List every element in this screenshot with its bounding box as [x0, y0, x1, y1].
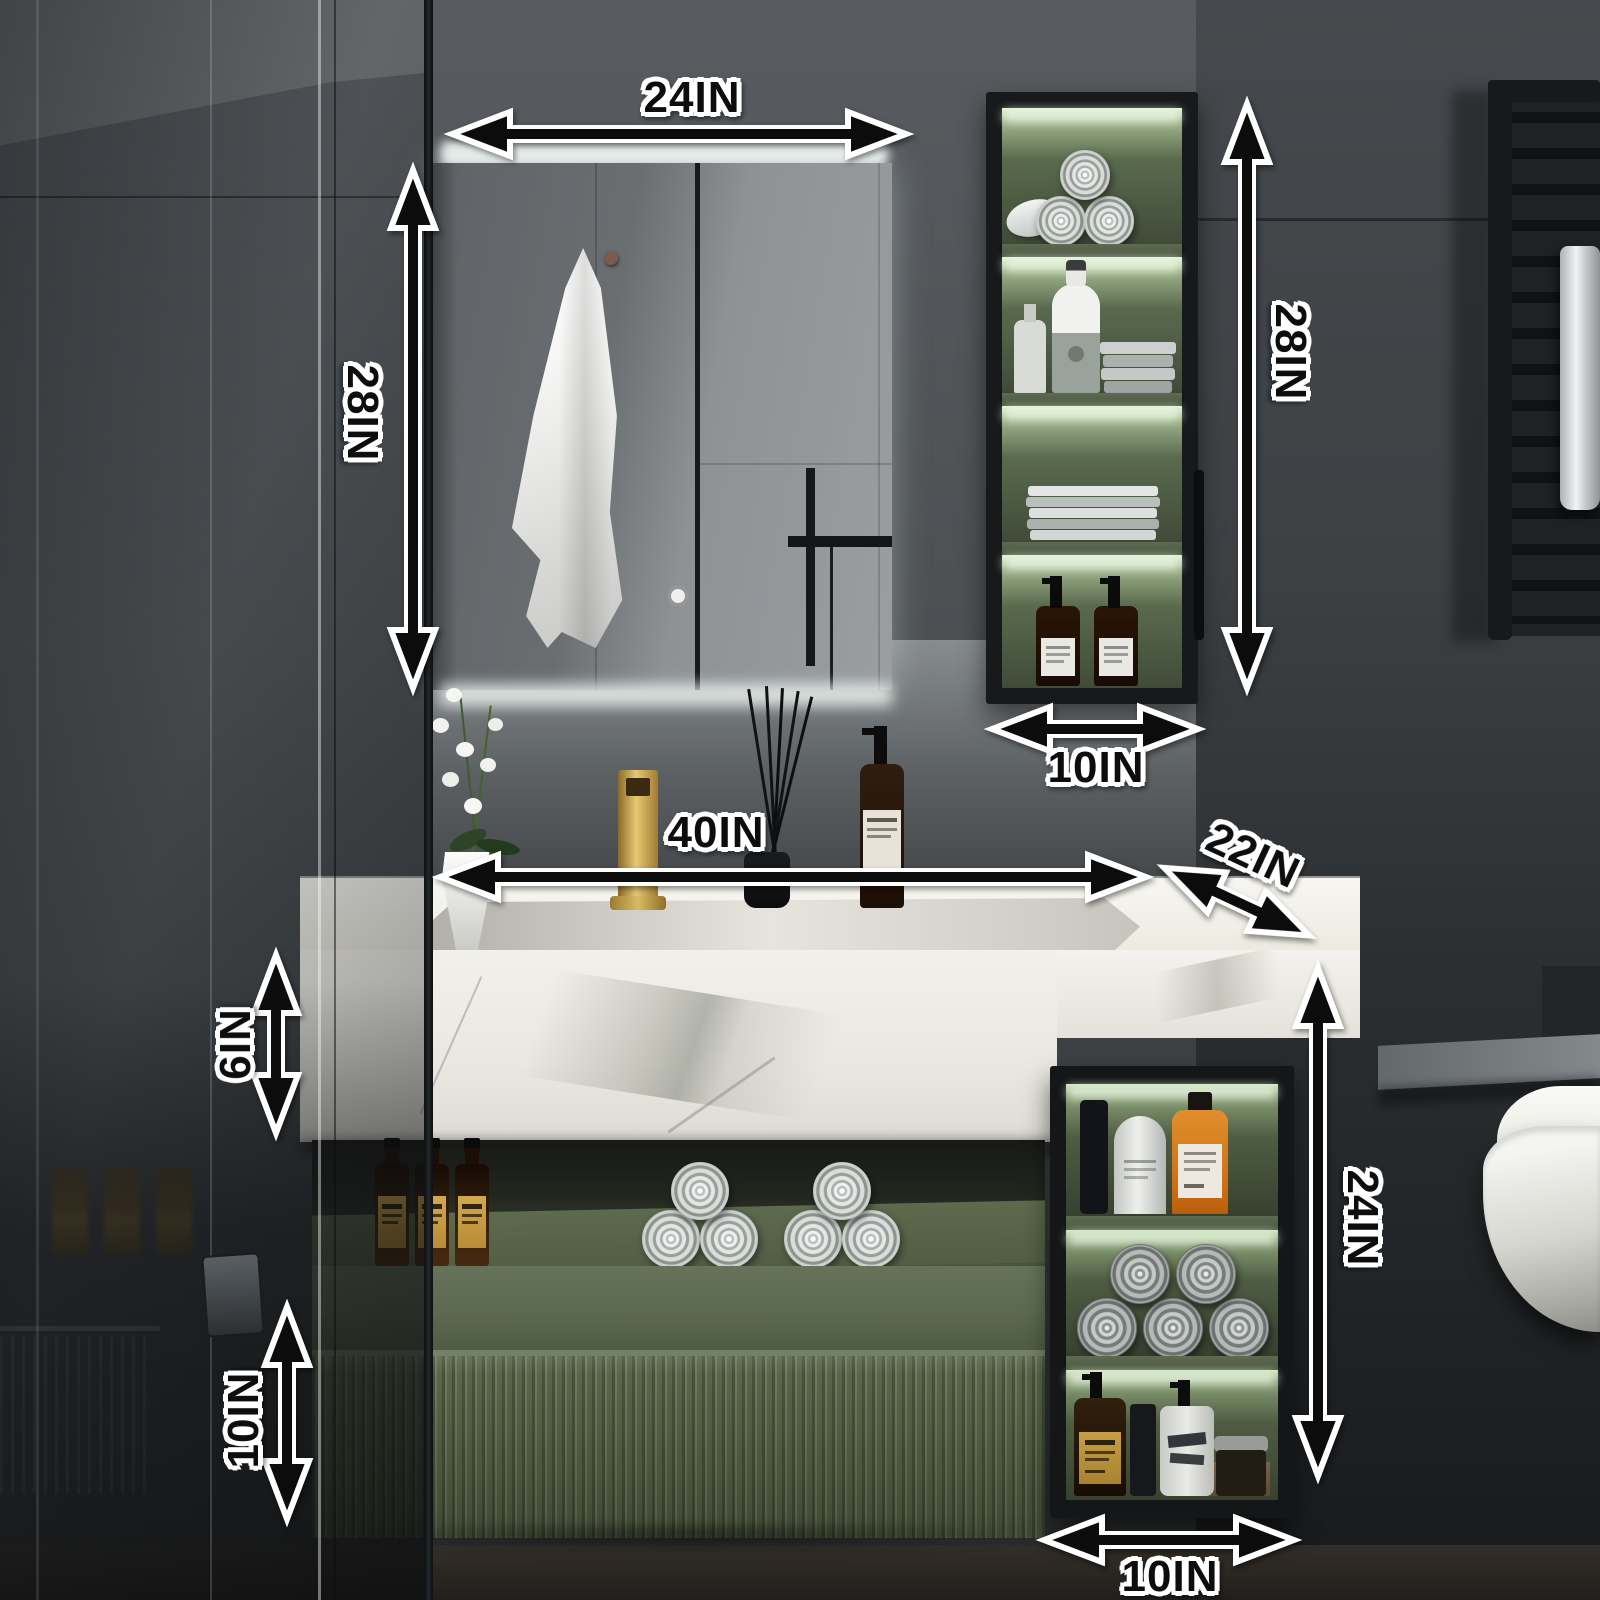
towel-radiator-rail [1488, 80, 1512, 640]
mirror-logo-dot [668, 586, 688, 606]
mirror-seam [695, 163, 700, 690]
rolled-towel [1143, 1298, 1203, 1358]
folded-towel-stack [1026, 486, 1160, 542]
led-glow-strip [1004, 557, 1180, 569]
shower-mixer-hose [830, 547, 833, 690]
folded-towel-layer [1028, 486, 1158, 496]
dim-label-vanity-width: 40IN [668, 808, 765, 858]
folded-towel-layer [1030, 530, 1156, 540]
rolled-towel [1060, 150, 1110, 200]
folded-towel-layer [1101, 368, 1175, 380]
label-text-line [1046, 646, 1070, 649]
label-text-line [462, 1221, 478, 1224]
led-glow-strip [1004, 408, 1180, 420]
shelf-amber-bottle [455, 1138, 489, 1268]
amber-pump-bottle-nub [1082, 1374, 1096, 1380]
label-text-line [1184, 1168, 1210, 1171]
label-text-line [1046, 653, 1070, 656]
orchid-flower [464, 798, 482, 814]
label-text-line [1085, 1440, 1115, 1445]
orchid-flower [456, 742, 474, 757]
glass-edge-line [210, 0, 212, 1600]
led-mirror [432, 163, 892, 690]
glass-edge-line [36, 0, 39, 1600]
cabinet-compartment-1 [1002, 108, 1182, 244]
cabinet-compartment-2 [1002, 257, 1182, 393]
label-text-line [1085, 1458, 1109, 1461]
folded-towel-layer [1026, 497, 1160, 507]
folded-towel-layer [1029, 508, 1157, 518]
rolled-towel [1176, 1244, 1236, 1304]
label-text-line [1184, 1152, 1216, 1155]
orchid [420, 660, 550, 960]
label-text-line [1085, 1470, 1105, 1473]
orange-bottle-cap [1188, 1092, 1212, 1112]
dim-label-mirror-height: 28IN [337, 365, 387, 462]
label-text-line [1104, 660, 1122, 663]
rolled-towel [1036, 196, 1086, 246]
amber-pump-bottle-nub [1042, 578, 1054, 584]
dim-label-wall-cabinet-height: 28IN [1265, 304, 1315, 401]
dim-label-drawer-height: 10IN [219, 1372, 269, 1469]
ceramic-bottle-cap [1066, 260, 1086, 286]
faucet-spout-slot [626, 778, 650, 796]
cabinet-compartment-3 [1002, 406, 1182, 542]
dim-label-side-cabinet-width: 10IN [1122, 1552, 1219, 1600]
pump-bottle-small-pump [1024, 304, 1036, 322]
label-text-line [867, 818, 897, 822]
pump-bottle-small [1014, 320, 1046, 393]
label-text-line [462, 1214, 482, 1217]
orchid-flower [488, 718, 503, 731]
cistern-box [1542, 966, 1600, 1042]
dim-arrow-vanity-width [436, 849, 1150, 905]
dim-label-mirror-width: 24IN [644, 73, 741, 123]
ceramic-bottle [1052, 284, 1100, 393]
cabinet-handle [1194, 470, 1204, 640]
led-glow-strip [1004, 259, 1180, 271]
side-compartment-3 [1066, 1370, 1278, 1500]
led-glow-strip [1068, 1232, 1276, 1244]
orange-bottle-label [1178, 1144, 1222, 1198]
label-text-line [1104, 653, 1128, 656]
rolled-towel [700, 1210, 758, 1268]
dark-bottle [1080, 1100, 1108, 1214]
soap-pump-nozzle [862, 728, 878, 735]
glass-edge-highlight [318, 0, 321, 1600]
mirror-grout-line-h [700, 463, 892, 465]
dim-label-side-cabinet-height: 24IN [1337, 1170, 1387, 1267]
side-compartment-1 [1066, 1084, 1278, 1216]
rolled-towel [1110, 1244, 1170, 1304]
rolled-towel [842, 1210, 900, 1268]
led-glow-strip [1068, 1086, 1276, 1098]
towel-hook-knob [604, 251, 618, 265]
side-unit-interior [1066, 1084, 1278, 1500]
radiator-towel [1560, 246, 1600, 510]
amber-pump-bottle [1074, 1398, 1126, 1496]
rolled-towel [813, 1162, 871, 1220]
mirror-grout-line-v2 [878, 163, 880, 690]
marble-vein [355, 950, 1004, 1142]
label-text-line [1170, 1453, 1205, 1465]
label-text-line [462, 1204, 482, 1209]
rolled-towel [1084, 196, 1134, 246]
dim-label-countertop-height: 6IN [211, 1008, 261, 1079]
cosmetic-jar-body [1216, 1450, 1266, 1496]
cabinet-shelf [1002, 244, 1182, 257]
cabinet-shelf [1002, 393, 1182, 406]
glass-shower-panel [0, 0, 433, 1600]
amber-pump-bottle-nub [1100, 578, 1112, 584]
cabinet-compartment-4 [1002, 555, 1182, 688]
label-text-line [1184, 1160, 1216, 1163]
orange-bottle [1172, 1110, 1228, 1214]
dim-label-wall-cabinet-width: 10IN [1048, 743, 1145, 793]
orchid-flower [442, 772, 459, 787]
white-cylinder-bottle [1114, 1116, 1166, 1214]
wall-cabinet-interior [1002, 108, 1182, 688]
glass-edge-dark [334, 0, 336, 1600]
apple-motif [1068, 346, 1084, 362]
orchid-flower [432, 718, 449, 733]
white-pump-bottle [1160, 1406, 1214, 1496]
orchid-flower [446, 688, 462, 702]
side-unit-shelf [1066, 1356, 1278, 1370]
folded-towel-layer [1027, 519, 1159, 529]
glass-seam-horizontal [0, 196, 424, 198]
bathroom-vanity-scene: 24IN 28IN 28IN 10IN 40IN 22IN 6IN [0, 0, 1600, 1600]
rolled-towel [671, 1162, 729, 1220]
folded-towel-layer [1100, 342, 1176, 354]
black-slim-bottle [1130, 1404, 1156, 1496]
rolled-towel [1077, 1298, 1137, 1358]
amber-bottle-label [1099, 638, 1133, 676]
side-unit-shelf [1066, 1216, 1278, 1230]
folded-towel-layer [1104, 381, 1172, 393]
white-pump-bottle-nub [1170, 1382, 1186, 1388]
orchid-flower [480, 758, 496, 772]
glass-clamp [201, 1252, 265, 1338]
rolled-towel [1209, 1298, 1269, 1358]
label-text-line [1124, 1168, 1156, 1171]
label-text-line [1046, 660, 1064, 663]
label-text-line [1124, 1176, 1148, 1179]
label-text-line [1104, 646, 1128, 649]
bottle-gold-label [1079, 1432, 1121, 1484]
dim-arrow-mirror-height [385, 166, 441, 692]
label-text-line [1167, 1432, 1206, 1448]
label-text-line [867, 828, 897, 831]
folded-towels [1100, 342, 1176, 393]
label-text-line [867, 835, 891, 838]
led-glow-strip [1004, 110, 1180, 122]
hanging-towel [487, 248, 665, 648]
label-text-line [1184, 1184, 1204, 1188]
folded-towel-layer [1103, 355, 1173, 367]
shower-mixer-bar-h [788, 536, 892, 547]
amber-bottle-label [1041, 638, 1075, 676]
bottle-gold-label [458, 1196, 486, 1248]
shower-mixer-bar-v [806, 468, 815, 666]
side-compartment-2 [1066, 1230, 1278, 1356]
label-text-line [1085, 1451, 1115, 1454]
cabinet-shelf [1002, 542, 1182, 555]
label-text-line [1124, 1160, 1156, 1163]
